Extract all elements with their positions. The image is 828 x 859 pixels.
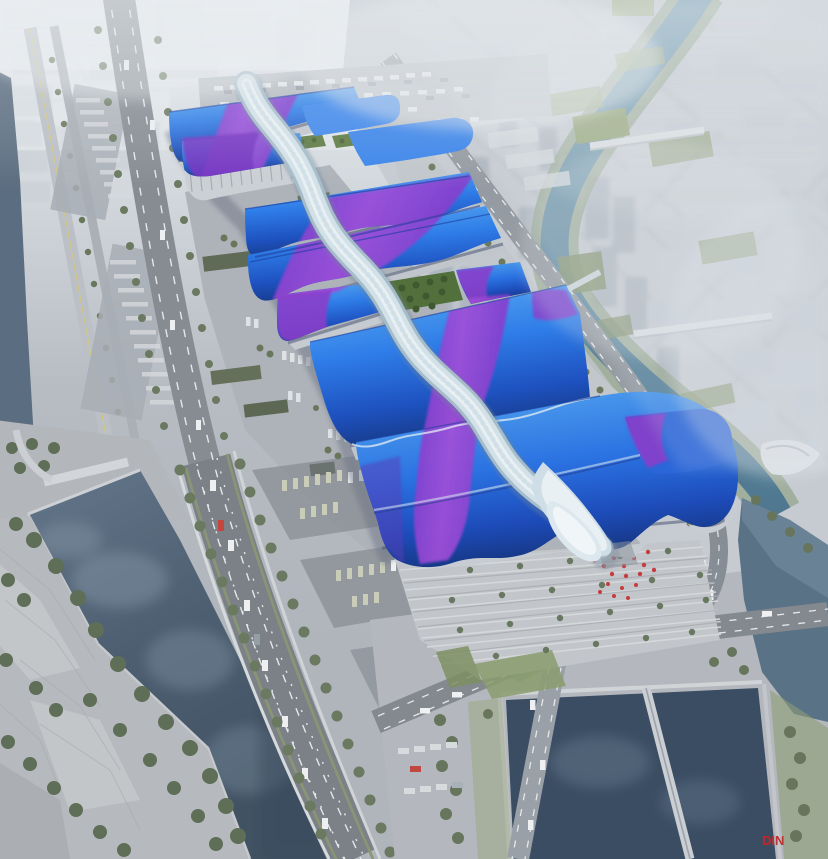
svg-text:DIN: DIN <box>762 833 784 848</box>
